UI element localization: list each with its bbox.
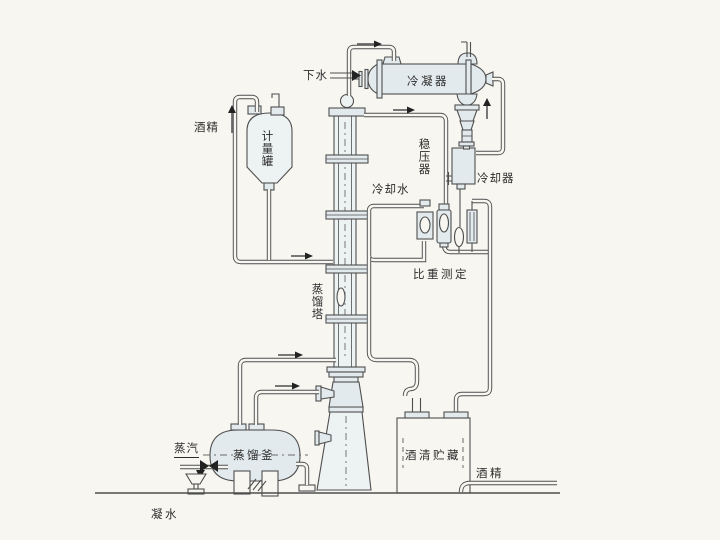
tower-top-dome	[341, 95, 354, 108]
label-distillation-kettle: 蒸馏釜	[233, 447, 275, 463]
diagram-canvas	[0, 0, 720, 540]
kettle-support	[234, 471, 250, 494]
condenser-outlet-nozzle	[486, 72, 493, 86]
flow-sight-glass	[437, 204, 451, 247]
tower-sight-glass	[337, 288, 345, 306]
kettle-vapor-pipe-lower	[256, 392, 319, 425]
flow-arrow-up-condenser-loop	[483, 98, 491, 119]
flow-arrow-reflux	[291, 253, 313, 260]
gravity-bottom-run-pipe	[444, 244, 490, 252]
condensate-funnel	[186, 474, 206, 494]
process-flow-diagram: 下水 冷凝器 酒精 计量罐 稳压器 冷却水 冷却器 比重测定 蒸馏塔 蒸馏釜 蒸…	[0, 0, 720, 540]
label-pressure-stabilizer: 稳压器	[417, 138, 429, 176]
storage-tank-inlet-stubs	[405, 398, 468, 418]
hydrometer-tube	[467, 201, 477, 252]
distillation-tower	[315, 95, 371, 491]
label-condenser: 冷凝器	[407, 73, 449, 89]
label-drain-water: 下水	[303, 67, 328, 83]
condensate-separator-chain	[455, 94, 479, 149]
label-alcohol-out: 酒精	[476, 465, 504, 481]
tower-top-lid	[329, 108, 365, 116]
label-condensate-water: 凝水	[151, 506, 179, 522]
flow-arrow-tower-top-pipe	[393, 107, 415, 114]
kettle-leg-foot	[299, 485, 315, 491]
label-metering-tank: 计量罐	[260, 130, 272, 168]
cooler-vessel	[452, 148, 475, 189]
label-cooler: 冷却器	[477, 170, 515, 186]
gooseneck-discharge-pipe	[369, 257, 417, 396]
flow-arrow-kettle-upper	[278, 352, 303, 359]
label-cooling-water: 冷却水	[372, 181, 410, 197]
metering-tank-vent	[272, 94, 279, 107]
label-steam: 蒸汽	[174, 440, 199, 458]
label-alcohol-feed: 酒精	[194, 119, 219, 135]
label-distillation-tower: 蒸馏塔	[310, 283, 322, 321]
cooling-water-loop	[369, 206, 424, 260]
drip-sight-glass	[455, 189, 464, 253]
condenser-vessel	[352, 42, 493, 98]
flow-arrow-kettle-lower	[275, 383, 300, 390]
label-specific-gravity: 比重测定	[413, 266, 469, 282]
label-alcohol-storage: 酒清贮藏	[405, 447, 461, 463]
